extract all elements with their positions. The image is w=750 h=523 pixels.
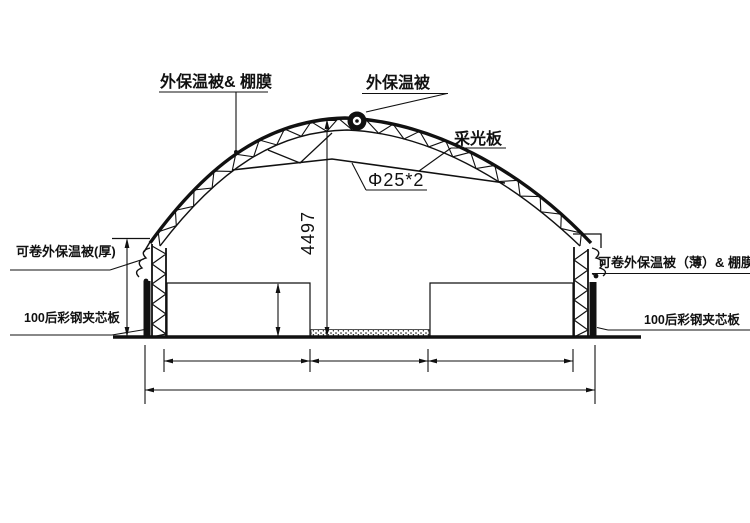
dim2-arrow-right	[586, 388, 595, 393]
dim1-arrow-c1	[419, 359, 428, 364]
leader-pipe-spec	[352, 163, 366, 190]
right-wall-web	[574, 250, 588, 337]
sandwich-panel-right	[590, 282, 597, 337]
insulation-roll	[348, 112, 367, 131]
dim1-arrow-a	[164, 359, 173, 364]
roll-core	[355, 119, 359, 123]
walkway-gravel	[311, 330, 429, 338]
leader-right-panel	[597, 328, 608, 331]
planting-bed-left	[167, 283, 310, 337]
dim1-arrow-b1	[301, 359, 310, 364]
apex-brace	[268, 133, 332, 163]
dim-span-segments	[164, 349, 573, 372]
label-roof-quilt-film: 外保温被& 棚膜	[159, 72, 272, 91]
annotations: 外保温被& 棚膜 外保温被 采光板 Φ25*2 可卷外保温被(厚) 100后彩钢…	[10, 72, 750, 335]
dim2-arrow-left	[145, 388, 154, 393]
leader-daylight-panel	[419, 148, 451, 171]
dim-wall-arrow-top	[125, 238, 130, 248]
rolled-quilt-left-end	[144, 279, 149, 284]
sandwich-panel-left	[144, 281, 151, 337]
label-right-panel: 100后彩钢夹芯板	[644, 312, 740, 327]
dim-bed-arrow-top	[276, 283, 281, 293]
drawing-canvas: 4497 外保温被& 棚膜	[0, 0, 750, 523]
leader-left-panel	[112, 329, 148, 335]
left-wall-web	[152, 246, 166, 337]
dim1-arrow-d	[564, 359, 573, 364]
dim-left-wall-height	[125, 238, 130, 337]
planting-bed-right	[430, 283, 573, 337]
dim1-arrow-c2	[428, 359, 437, 364]
greenhouse-section-drawing: 4497 外保温被& 棚膜	[0, 0, 750, 523]
label-daylight-panel: 采光板	[453, 129, 503, 148]
label-left-panel: 100后彩钢夹芯板	[24, 310, 120, 325]
leader-roof-quilt-film-dot	[234, 150, 238, 154]
leader-roof-quilt	[366, 94, 447, 113]
dim-bed-height	[276, 283, 281, 337]
dim-total-span	[145, 345, 595, 404]
wall-truss-left	[137, 244, 166, 337]
label-left-quilt-thick: 可卷外保温被(厚)	[16, 244, 116, 259]
rolled-quilt-left	[137, 248, 150, 277]
label-roof-quilt: 外保温被	[365, 73, 431, 92]
label-pipe-spec: Φ25*2	[368, 170, 424, 190]
label-right-quilt-thin-film: 可卷外保温被（薄）& 棚膜	[598, 255, 750, 270]
dim-ridge-value: 4497	[298, 211, 318, 255]
dim1-arrow-b2	[310, 359, 319, 364]
dim-ridge-height: 4497	[298, 119, 336, 337]
